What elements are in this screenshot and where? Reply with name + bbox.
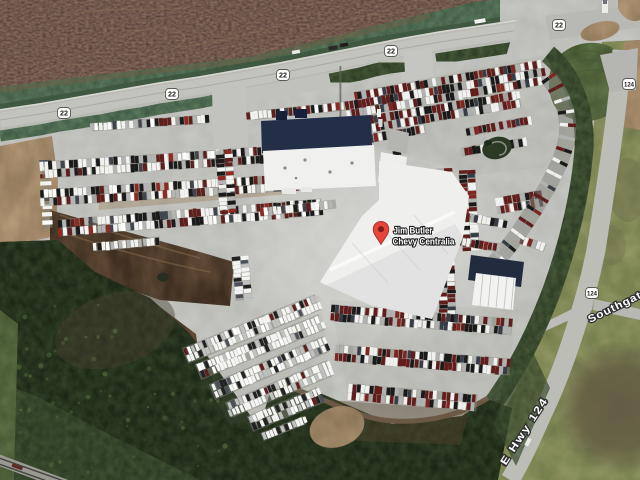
svg-text:Chevy Centralia: Chevy Centralia bbox=[393, 237, 456, 247]
svg-text:22: 22 bbox=[387, 46, 395, 55]
svg-text:Jim Butler: Jim Butler bbox=[394, 226, 433, 236]
svg-text:22: 22 bbox=[555, 20, 563, 29]
svg-text:124: 124 bbox=[624, 82, 635, 88]
svg-text:22: 22 bbox=[279, 70, 287, 79]
svg-text:22: 22 bbox=[60, 108, 68, 117]
svg-text:124: 124 bbox=[587, 291, 598, 297]
svg-text:22: 22 bbox=[168, 89, 176, 98]
